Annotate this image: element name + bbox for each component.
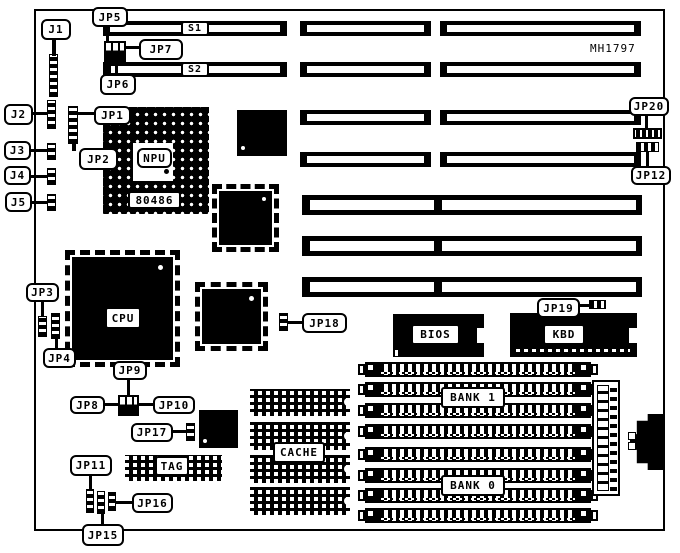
callout-j4: J4: [4, 166, 31, 185]
jp4-jumper: [51, 313, 60, 339]
callout-j3: J3: [4, 141, 31, 160]
j4-connector: [47, 168, 56, 185]
callout-j5: J5: [5, 192, 32, 212]
jp19-jumper: [589, 300, 606, 309]
callout-jp17: JP17: [131, 423, 173, 442]
isa-slot-16bit: [302, 195, 642, 215]
callout-jp8: JP8: [70, 396, 105, 414]
callout-jp11: JP11: [70, 455, 112, 476]
callout-jp4: JP4: [43, 348, 76, 368]
kbd-label: KBD: [543, 324, 585, 345]
jp15-jumper: [97, 491, 105, 514]
npu-label: NPU: [137, 148, 172, 168]
slot-s2-label: S2: [181, 62, 209, 77]
cpu-socket-label: 80486: [128, 191, 181, 209]
callout-jp15: JP15: [82, 524, 124, 546]
jp8-jp9-jp10-block: [118, 395, 139, 416]
cache-socket: [250, 487, 350, 515]
j5-connector: [47, 194, 56, 211]
callout-jp3: JP3: [26, 283, 59, 302]
isa-slot: [440, 62, 641, 77]
kbd-notch: [629, 328, 637, 343]
callout-jp18: JP18: [302, 313, 347, 333]
jp20-jumper: [633, 128, 662, 139]
isa-slot: [300, 21, 431, 36]
callout-jp19: JP19: [537, 298, 580, 318]
j2-connector: [47, 100, 56, 129]
kbd-dash: [516, 349, 630, 352]
cpu-label: CPU: [105, 307, 141, 329]
isa-slot-16bit: [302, 236, 642, 256]
callout-jp10: JP10: [153, 396, 195, 414]
pin1-dot: [164, 169, 169, 174]
isa-slot: [440, 21, 641, 36]
cache-socket: [250, 389, 350, 416]
callout-jp20: JP20: [629, 97, 669, 116]
isa-slot: [440, 152, 641, 167]
jp3-jumper: [38, 316, 47, 337]
chipset-qfp: [212, 184, 279, 252]
callout-jp16: JP16: [132, 493, 173, 513]
bios-notch: [477, 328, 485, 343]
callout-jp7: JP7: [139, 39, 183, 60]
callout-jp9: JP9: [113, 361, 147, 380]
jp11-jumper: [86, 489, 94, 513]
din-pin: [628, 442, 636, 450]
bios-label: BIOS: [411, 324, 460, 345]
callout-j2: J2: [4, 104, 33, 125]
pin1-dot: [241, 146, 245, 150]
pin1-dot: [203, 439, 207, 443]
bank0-label: BANK 0: [441, 475, 505, 496]
simm-socket: [358, 447, 598, 462]
callout-jp2: JP2: [79, 148, 118, 170]
callout-jp12: JP12: [631, 166, 671, 185]
tag-label: TAG: [155, 456, 189, 476]
bank1-label: BANK 1: [441, 387, 505, 408]
callout-j1: J1: [41, 19, 71, 40]
io-qfp: [195, 282, 268, 351]
part-number: MH1797: [590, 42, 636, 55]
simm-socket: [358, 508, 598, 523]
isa-slot: [440, 110, 641, 125]
callout-jp1: JP1: [94, 106, 131, 125]
j3-connector: [47, 143, 56, 160]
isa-slot: [300, 110, 431, 125]
slot-s1-label: S1: [181, 21, 209, 36]
callout-jp6: JP6: [100, 74, 136, 95]
isa-slot-16bit: [302, 277, 642, 297]
simm-socket: [358, 424, 598, 439]
bios-dot: [395, 350, 398, 356]
isa-slot: [300, 152, 431, 167]
cache-label: CACHE: [273, 442, 325, 463]
power-connector: [592, 380, 620, 496]
simm-socket: [358, 362, 598, 377]
din-pin: [628, 432, 636, 440]
callout-jp5: JP5: [92, 7, 128, 27]
jp5-jp6-jp7-block: [104, 41, 126, 62]
motherboard-diagram: S1 S2 MH1797 NPU 80486 CPU BIOS KBD TAG: [0, 0, 680, 553]
jp1-connector: [68, 106, 78, 144]
j1-connector: [49, 54, 58, 97]
jp17-jumper: [186, 423, 195, 441]
isa-slot: [300, 62, 431, 77]
